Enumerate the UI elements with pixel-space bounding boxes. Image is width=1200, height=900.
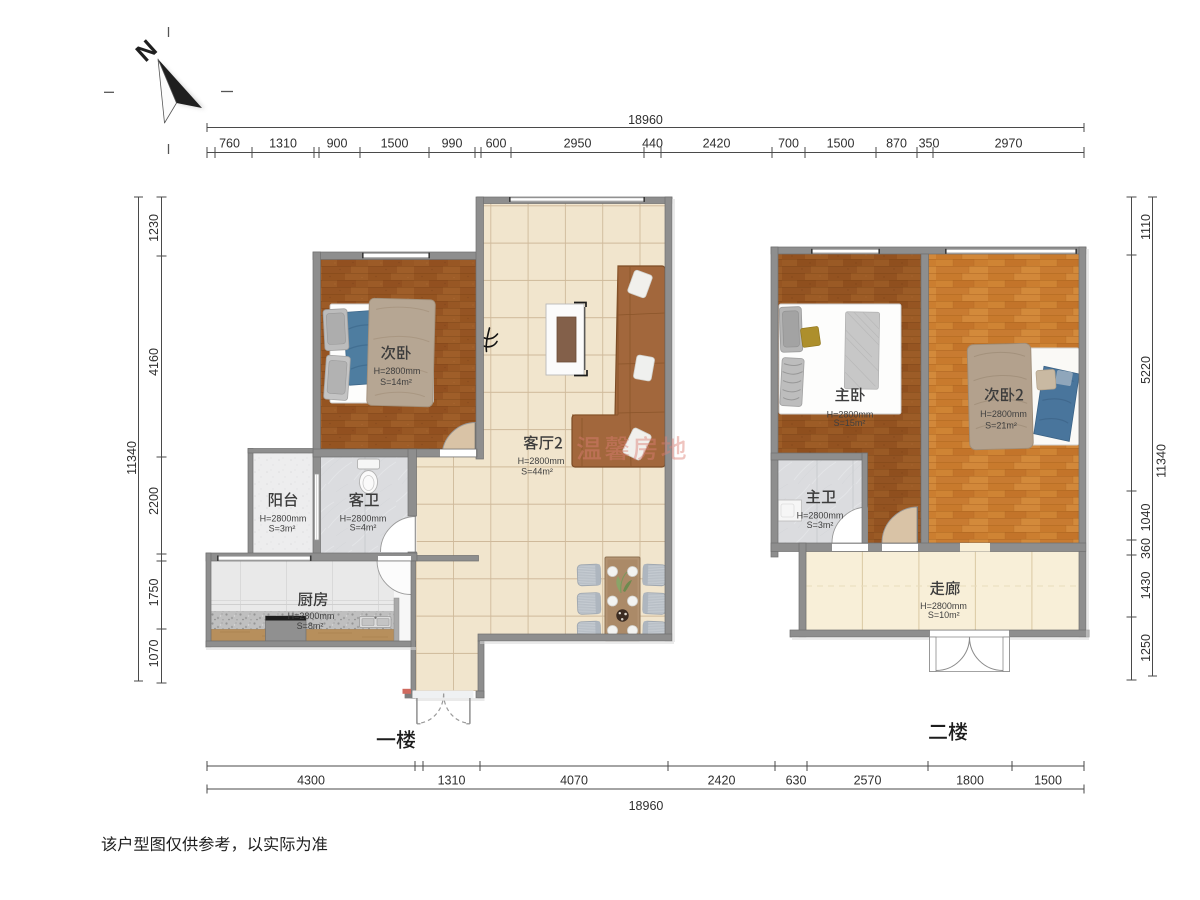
- svg-text:H=2800mm: H=2800mm: [374, 366, 421, 376]
- svg-text:18960: 18960: [628, 113, 663, 127]
- svg-text:S=15m²: S=15m²: [834, 418, 866, 428]
- svg-text:S=21m²: S=21m²: [985, 421, 1017, 431]
- svg-text:5220: 5220: [1139, 356, 1153, 384]
- svg-text:1250: 1250: [1139, 634, 1153, 662]
- svg-text:760: 760: [219, 137, 240, 151]
- svg-text:H=2800mm: H=2800mm: [288, 611, 335, 621]
- svg-text:1070: 1070: [147, 640, 161, 668]
- svg-text:S=3m²: S=3m²: [269, 524, 296, 534]
- svg-text:11340: 11340: [1155, 444, 1169, 478]
- svg-text:2200: 2200: [147, 487, 161, 515]
- svg-text:S=8m²: S=8m²: [297, 621, 324, 631]
- svg-text:1500: 1500: [1034, 774, 1062, 788]
- svg-text:2420: 2420: [708, 774, 736, 788]
- svg-text:S=3m²: S=3m²: [807, 520, 834, 530]
- svg-text:4070: 4070: [560, 774, 588, 788]
- svg-text:990: 990: [442, 137, 463, 151]
- svg-text:1310: 1310: [269, 137, 297, 151]
- svg-text:1750: 1750: [147, 579, 161, 607]
- svg-text:1500: 1500: [381, 137, 409, 151]
- svg-text:S=10m²: S=10m²: [928, 610, 960, 620]
- svg-text:1310: 1310: [438, 774, 466, 788]
- svg-text:440: 440: [642, 137, 663, 151]
- svg-text:18960: 18960: [629, 799, 664, 813]
- svg-text:11340: 11340: [125, 441, 139, 475]
- svg-text:H=2800mm: H=2800mm: [980, 409, 1027, 419]
- svg-text:H=2800mm: H=2800mm: [797, 511, 844, 521]
- svg-text:1230: 1230: [147, 214, 161, 242]
- svg-text:2420: 2420: [703, 137, 731, 151]
- svg-text:1110: 1110: [1139, 214, 1153, 240]
- svg-text:1040: 1040: [1139, 504, 1153, 532]
- svg-text:1430: 1430: [1139, 572, 1153, 600]
- svg-text:350: 350: [919, 137, 940, 151]
- svg-text:4300: 4300: [297, 774, 325, 788]
- svg-text:1800: 1800: [956, 774, 984, 788]
- svg-text:4160: 4160: [147, 348, 161, 376]
- svg-text:H=2800mm: H=2800mm: [518, 456, 565, 466]
- svg-text:S=14m²: S=14m²: [380, 377, 412, 387]
- svg-text:2970: 2970: [995, 137, 1023, 151]
- svg-text:2950: 2950: [564, 137, 592, 151]
- svg-text:S=4m²: S=4m²: [350, 523, 377, 533]
- svg-text:360: 360: [1139, 538, 1153, 559]
- svg-text:S=44m²: S=44m²: [521, 467, 553, 477]
- svg-text:2570: 2570: [854, 774, 882, 788]
- svg-text:600: 600: [486, 137, 507, 151]
- svg-text:1500: 1500: [827, 137, 855, 151]
- svg-text:700: 700: [778, 137, 799, 151]
- svg-text:900: 900: [327, 137, 348, 151]
- svg-text:870: 870: [886, 137, 907, 151]
- svg-text:630: 630: [786, 774, 807, 788]
- svg-text:H=2800mm: H=2800mm: [260, 514, 307, 524]
